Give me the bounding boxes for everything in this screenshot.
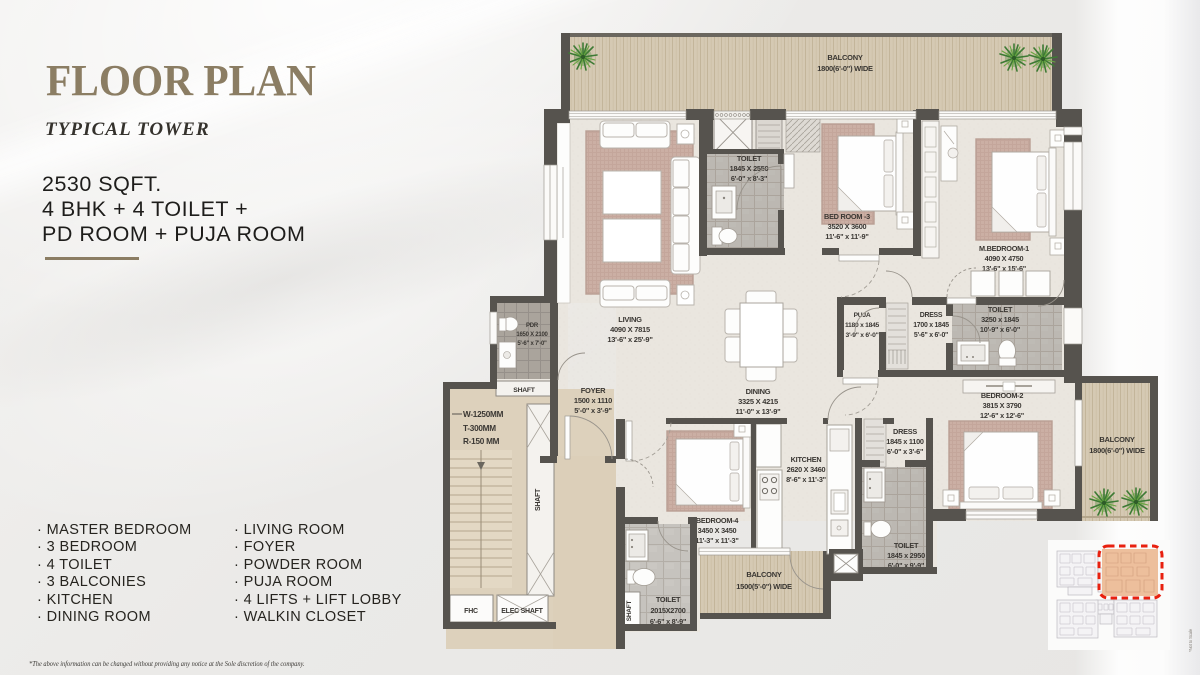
svg-text:3520 X 3600: 3520 X 3600: [828, 222, 867, 231]
svg-text:SHAFT: SHAFT: [626, 601, 633, 622]
svg-text:1500(5'-0") WIDE: 1500(5'-0") WIDE: [736, 582, 792, 591]
svg-text:SHAFT: SHAFT: [535, 488, 542, 511]
svg-text:13'-6" x 25'-9": 13'-6" x 25'-9": [607, 335, 653, 344]
svg-text:3815 X 3790: 3815 X 3790: [983, 401, 1022, 410]
svg-text:FOYER: FOYER: [581, 386, 606, 395]
svg-text:6'-0" x 8'-3": 6'-0" x 8'-3": [731, 174, 767, 183]
svg-text:BALCONY: BALCONY: [827, 53, 863, 62]
svg-text:3325 X 4215: 3325 X 4215: [738, 397, 778, 406]
svg-text:TOILET: TOILET: [988, 305, 1013, 314]
svg-text:11'-6" x 11'-9": 11'-6" x 11'-9": [825, 232, 868, 241]
svg-text:1845 x 2950: 1845 x 2950: [887, 551, 925, 560]
svg-text:SHAFT: SHAFT: [513, 387, 536, 394]
svg-text:BEDROOM-2: BEDROOM-2: [981, 391, 1024, 400]
svg-text:T-300MM: T-300MM: [463, 424, 496, 433]
svg-text:TOILET: TOILET: [894, 541, 919, 550]
svg-text:BALCONY: BALCONY: [1099, 435, 1135, 444]
svg-text:5'-0" x 3'-9": 5'-0" x 3'-9": [574, 406, 612, 415]
svg-text:1845 X 2550: 1845 X 2550: [730, 164, 769, 173]
svg-text:BEDROOM-4: BEDROOM-4: [696, 516, 740, 525]
svg-text:BED ROOM -3: BED ROOM -3: [824, 212, 870, 221]
svg-text:FHC: FHC: [464, 608, 478, 615]
svg-text:PDR: PDR: [526, 323, 539, 329]
svg-text:5'-6" x 6'-0": 5'-6" x 6'-0": [914, 332, 948, 339]
svg-text:12'-6" x 12'-6": 12'-6" x 12'-6": [980, 411, 1024, 420]
svg-text:ELEC SHAFT: ELEC SHAFT: [501, 608, 543, 615]
svg-text:1180 x 1845: 1180 x 1845: [845, 322, 880, 329]
svg-text:5'-6" x 7'-0": 5'-6" x 7'-0": [517, 341, 547, 347]
svg-text:4090 X 7815: 4090 X 7815: [610, 325, 650, 334]
svg-text:2620 X 3460: 2620 X 3460: [787, 465, 826, 474]
svg-text:3'-9" x 6'-0": 3'-9" x 6'-0": [845, 332, 878, 339]
svg-text:W-1250MM: W-1250MM: [463, 410, 504, 419]
svg-text:11'-3" x 11'-3": 11'-3" x 11'-3": [695, 536, 738, 545]
svg-text:11'-0" x 13'-9": 11'-0" x 13'-9": [736, 407, 782, 416]
svg-text:1650 X 2100: 1650 X 2100: [516, 332, 548, 338]
svg-text:M.BEDROOM-1: M.BEDROOM-1: [979, 244, 1029, 253]
svg-text:10'-9" x 6'-0": 10'-9" x 6'-0": [980, 325, 1020, 334]
svg-text:3250 x 1845: 3250 x 1845: [981, 315, 1019, 324]
svg-text:DINING: DINING: [746, 387, 771, 396]
svg-text:PUJA: PUJA: [854, 312, 871, 319]
svg-text:6'-0" x 3'-6": 6'-0" x 3'-6": [887, 447, 923, 456]
svg-text:1800(6'-0") WIDE: 1800(6'-0") WIDE: [1089, 446, 1145, 455]
svg-text:DRESS: DRESS: [893, 427, 917, 436]
svg-text:2015X2700: 2015X2700: [650, 606, 685, 615]
svg-text:LIVING: LIVING: [618, 315, 642, 324]
svg-text:R-150 MM: R-150 MM: [463, 437, 500, 446]
svg-text:*Not to Scale: *Not to Scale: [1188, 628, 1193, 652]
svg-text:KITCHEN: KITCHEN: [791, 455, 822, 464]
svg-text:3450 X 3450: 3450 X 3450: [698, 526, 737, 535]
svg-text:1700 x 1845: 1700 x 1845: [913, 322, 949, 329]
svg-text:TOILET: TOILET: [737, 154, 762, 163]
svg-text:DRESS: DRESS: [920, 312, 943, 319]
svg-text:TOILET: TOILET: [656, 595, 681, 604]
svg-text:1500 x 1110: 1500 x 1110: [574, 396, 612, 405]
svg-text:BALCONY: BALCONY: [746, 570, 782, 579]
svg-text:8'-6" x 11'-3": 8'-6" x 11'-3": [786, 475, 826, 484]
svg-text:1800(6'-0") WIDE: 1800(6'-0") WIDE: [817, 64, 873, 73]
svg-text:1845 x 1100: 1845 x 1100: [886, 437, 924, 446]
svg-text:4090 X 4750: 4090 X 4750: [985, 254, 1024, 263]
